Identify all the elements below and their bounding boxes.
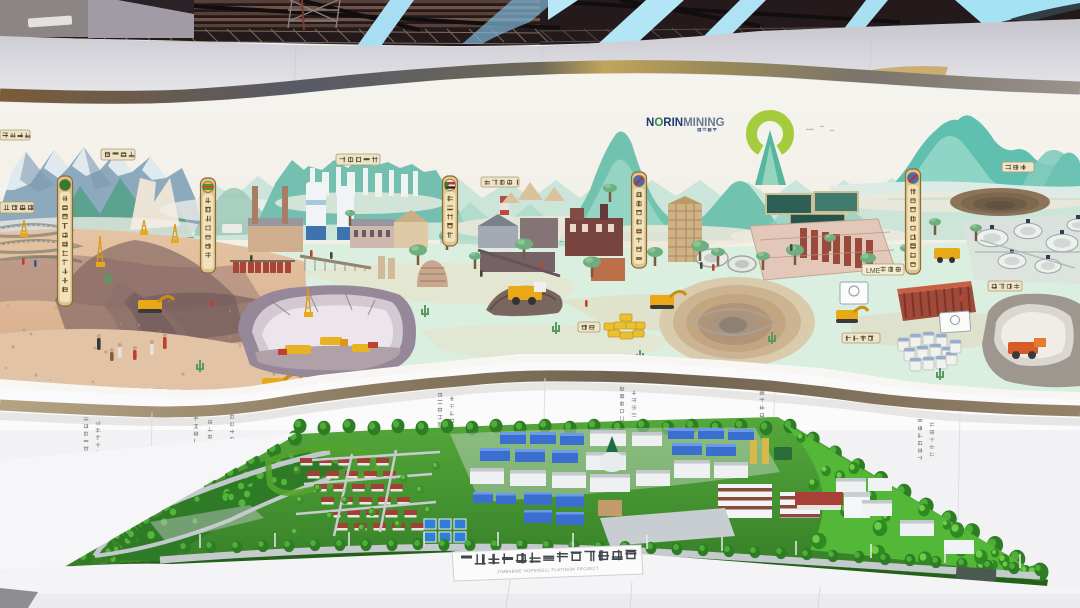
svg-text:NORINMINING: NORINMINING [646, 117, 725, 129]
svg-text:LME: LME [866, 268, 881, 275]
